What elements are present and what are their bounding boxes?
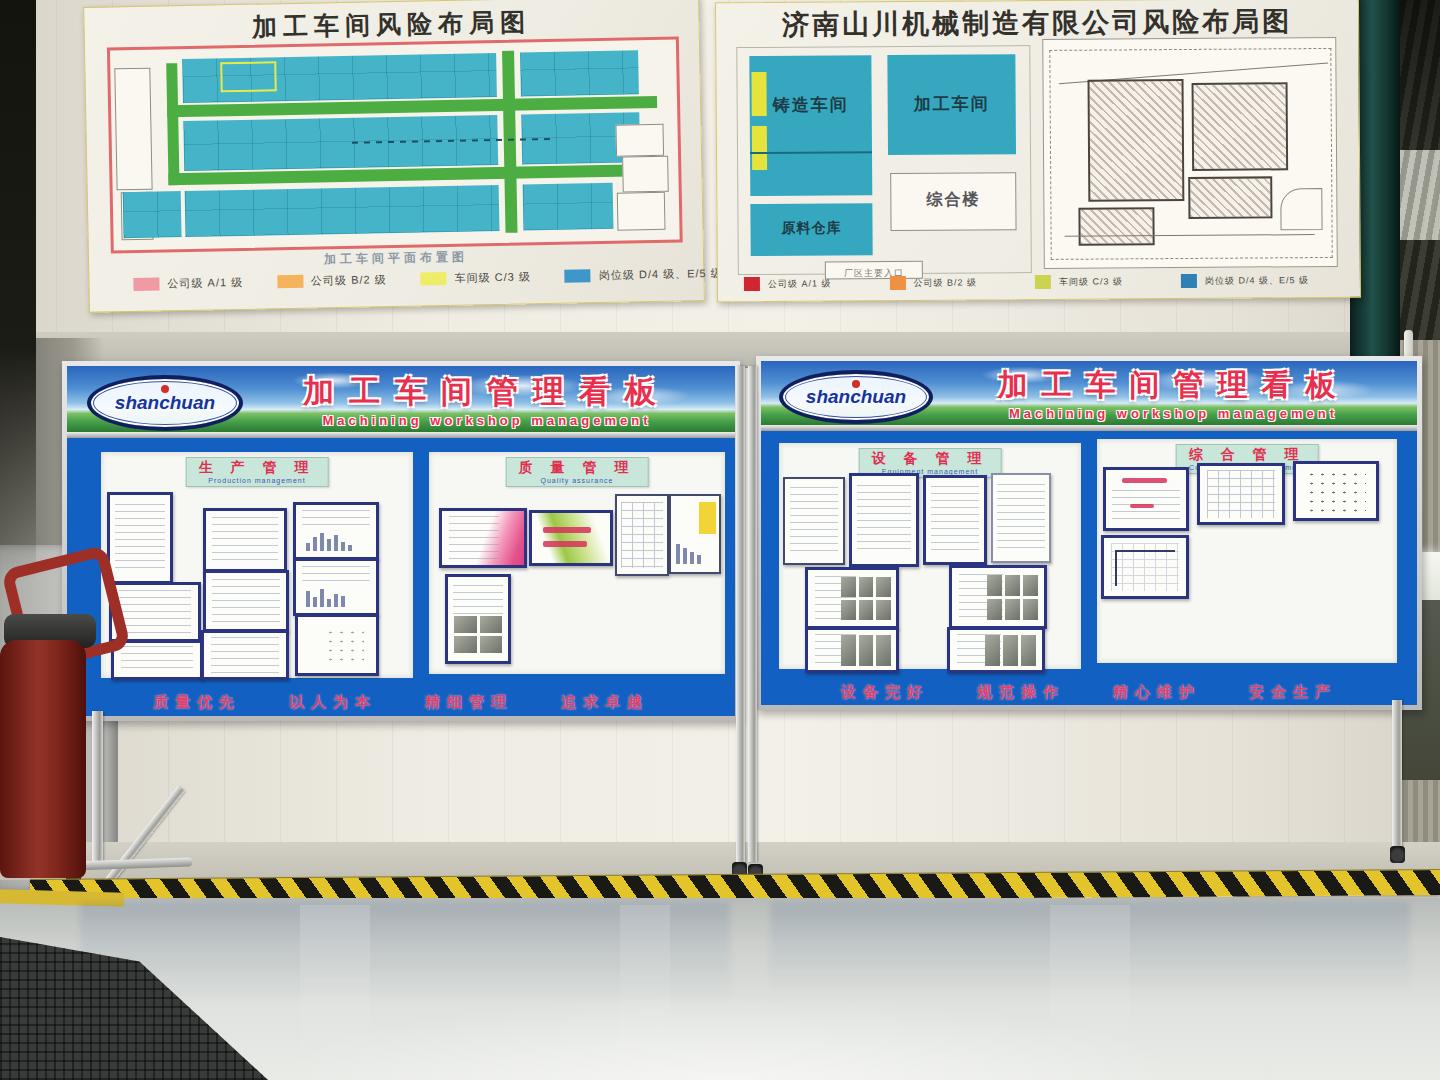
legend-swatch bbox=[565, 269, 591, 282]
building bbox=[1192, 82, 1289, 171]
shanchuan-logo: shanchuan bbox=[87, 375, 243, 431]
risk-layout-poster-right: 济南山川机械制造有限公司风险布局图 铸造车间 原料仓库 加工车间 综合楼 厂区主… bbox=[715, 0, 1361, 302]
board-title-block: 加工车间管理看板 Machining workshop management bbox=[936, 361, 1411, 425]
panel-comprehensive: 综 合 管 理 Comprehensive management bbox=[1097, 439, 1397, 663]
board-subtitle: Machining workshop management bbox=[1009, 406, 1338, 421]
board-banner: shanchuan 加工车间管理看板 Machining workshop ma… bbox=[67, 366, 735, 432]
document-table bbox=[615, 494, 669, 576]
section-title: 综 合 管 理 bbox=[1189, 446, 1306, 464]
block-label: 加工车间 bbox=[888, 92, 1016, 116]
slogan: 精细管理 bbox=[425, 693, 513, 712]
slogan: 精心维护 bbox=[1113, 683, 1201, 702]
caster-wheel bbox=[1390, 846, 1405, 863]
dark-corner bbox=[0, 0, 36, 580]
legend-item: 公司级 B/2 级 bbox=[889, 275, 977, 290]
aisle bbox=[502, 51, 517, 233]
document-table bbox=[1197, 463, 1285, 525]
document-chart bbox=[669, 494, 721, 574]
block-office: 综合楼 bbox=[890, 172, 1016, 231]
frame-divider bbox=[761, 425, 1417, 431]
building bbox=[1078, 207, 1154, 246]
document-photo-table bbox=[949, 565, 1047, 629]
risk-layout-poster-left: 加工车间风险布局图 加工车间平面布置图 bbox=[83, 0, 705, 313]
legend-label: 公司级 A/1 级 bbox=[167, 275, 243, 291]
legend-swatch bbox=[1035, 275, 1051, 289]
document bbox=[203, 508, 287, 572]
logo-dot-icon bbox=[852, 380, 860, 388]
document-notice bbox=[1103, 467, 1189, 531]
section-title: 设 备 管 理 bbox=[872, 450, 989, 468]
legend-item: 公司级 A/1 级 bbox=[744, 276, 832, 291]
document bbox=[203, 570, 289, 632]
legend-item: 岗位级 D/4 级、E/5 级 bbox=[1181, 273, 1309, 288]
board-title-block: 加工车间管理看板 Machining workshop management bbox=[247, 366, 727, 432]
floor-gloss bbox=[180, 930, 1280, 1080]
slogan: 质量优先 bbox=[153, 693, 241, 712]
document-scatter bbox=[295, 614, 379, 676]
legend-item: 岗位级 D/4 级、E/5 级 bbox=[565, 266, 723, 284]
legend: 公司级 A/1 级 公司级 B/2 级 车间级 C/3 级 岗位级 D/4 级、… bbox=[744, 273, 1343, 291]
slogan: 以人为本 bbox=[289, 693, 377, 712]
document bbox=[991, 473, 1051, 563]
board-leg bbox=[1392, 700, 1402, 850]
board-title: 加工车间管理看板 bbox=[998, 365, 1350, 406]
document bbox=[923, 475, 987, 565]
machine-area bbox=[183, 115, 498, 171]
section-title: 生 产 管 理 bbox=[199, 459, 316, 477]
slogan: 追求卓越 bbox=[561, 693, 649, 712]
legend-label: 岗位级 D/4 级、E/5 级 bbox=[1205, 274, 1309, 288]
legend-label: 公司级 B/2 级 bbox=[311, 272, 387, 288]
workshop-photo: 加工车间风险布局图 加工车间平面布置图 bbox=[0, 0, 1440, 1080]
slogan: 设备完好 bbox=[841, 683, 929, 702]
document-roster bbox=[1293, 461, 1379, 521]
extinguisher-body bbox=[0, 640, 86, 878]
legend-swatch bbox=[889, 276, 905, 290]
document bbox=[783, 477, 845, 565]
slogan: 安全生产 bbox=[1249, 683, 1337, 702]
board-leg bbox=[736, 366, 745, 864]
legend-item: 公司级 B/2 级 bbox=[277, 272, 387, 289]
section-subtitle: Quality assurance bbox=[519, 477, 636, 484]
section-title: 质 量 管 理 bbox=[519, 459, 636, 477]
board-title: 加工车间管理看板 bbox=[303, 371, 671, 413]
kanban-board-left: shanchuan 加工车间管理看板 Machining workshop ma… bbox=[62, 361, 740, 721]
legend-item: 车间级 C/3 级 bbox=[421, 269, 532, 286]
machine-area bbox=[185, 185, 500, 237]
board-subtitle: Machining workshop management bbox=[322, 413, 651, 428]
document bbox=[111, 640, 203, 680]
section-label: 生 产 管 理 Production management bbox=[186, 457, 329, 487]
document-certificate bbox=[439, 508, 527, 568]
highlight-cell bbox=[220, 61, 277, 92]
document-diagram bbox=[1101, 535, 1189, 599]
kanban-board-right: shanchuan 加工车间管理看板 Machining workshop ma… bbox=[756, 356, 1422, 710]
legend-label: 车间级 C/3 级 bbox=[455, 269, 532, 285]
risk-strip bbox=[752, 126, 767, 170]
panel-equipment: 设 备 管 理 Equipment management bbox=[779, 443, 1081, 669]
floor-plan bbox=[107, 37, 683, 254]
block-machining: 加工车间 bbox=[887, 54, 1016, 155]
machine-area bbox=[520, 50, 639, 96]
board-leg bbox=[92, 711, 103, 863]
block-label: 原料仓库 bbox=[750, 219, 872, 238]
legend-label: 公司级 A/1 级 bbox=[768, 277, 832, 290]
board-banner: shanchuan 加工车间管理看板 Machining workshop ma… bbox=[761, 361, 1417, 425]
document-photo-table bbox=[805, 627, 899, 673]
document-photo-table bbox=[947, 627, 1045, 673]
section-label: 质 量 管 理 Quality assurance bbox=[506, 457, 649, 487]
legend-swatch bbox=[744, 277, 760, 291]
block-warehouse: 原料仓库 bbox=[750, 203, 872, 256]
machine-area bbox=[123, 191, 182, 238]
legend-swatch bbox=[1181, 274, 1197, 288]
legend-label: 公司级 B/2 级 bbox=[913, 276, 977, 289]
document-photo-table bbox=[805, 567, 899, 629]
aisle bbox=[166, 63, 179, 185]
block-label: 综合楼 bbox=[891, 189, 1015, 211]
document bbox=[107, 492, 173, 584]
logo-text: shanchuan bbox=[806, 386, 906, 408]
logo-dot-icon bbox=[161, 385, 169, 393]
legend-label: 车间级 C/3 级 bbox=[1059, 275, 1123, 288]
shanchuan-logo: shanchuan bbox=[779, 370, 933, 424]
machine-area bbox=[523, 183, 614, 231]
building bbox=[1088, 79, 1185, 202]
panel-production: 生 产 管 理 Production management bbox=[101, 452, 413, 678]
frame-divider bbox=[67, 432, 735, 438]
panel-quality: 质 量 管 理 Quality assurance bbox=[429, 452, 725, 674]
legend-swatch bbox=[133, 278, 159, 291]
legend-swatch bbox=[421, 272, 447, 285]
logo-text: shanchuan bbox=[115, 392, 215, 414]
slogan-strip: 质量优先 以人为本 精细管理 追求卓越 bbox=[67, 693, 735, 712]
block-casting: 铸造车间 bbox=[749, 55, 872, 196]
legend-item: 公司级 A/1 级 bbox=[133, 275, 243, 292]
document bbox=[849, 473, 919, 567]
slogan: 规范操作 bbox=[977, 683, 1065, 702]
document-quality-slogan bbox=[529, 510, 613, 566]
legend-label: 岗位级 D/4 级、E/5 级 bbox=[599, 266, 723, 283]
legend-swatch bbox=[277, 275, 303, 288]
site-plan-drawing bbox=[1042, 37, 1338, 269]
building bbox=[1188, 176, 1272, 219]
slogan-strip: 设备完好 规范操作 精心维护 安全生产 bbox=[761, 683, 1417, 702]
block-label: 铸造车间 bbox=[750, 93, 872, 117]
site-block-diagram: 铸造车间 原料仓库 加工车间 综合楼 厂区主要入口 bbox=[736, 45, 1032, 275]
document-chart bbox=[293, 502, 379, 560]
document bbox=[201, 630, 289, 680]
document-photos bbox=[445, 574, 511, 664]
document-chart bbox=[293, 558, 379, 616]
section-subtitle: Production management bbox=[199, 477, 316, 484]
board-leg bbox=[748, 366, 757, 862]
legend-item: 车间级 C/3 级 bbox=[1035, 274, 1123, 289]
